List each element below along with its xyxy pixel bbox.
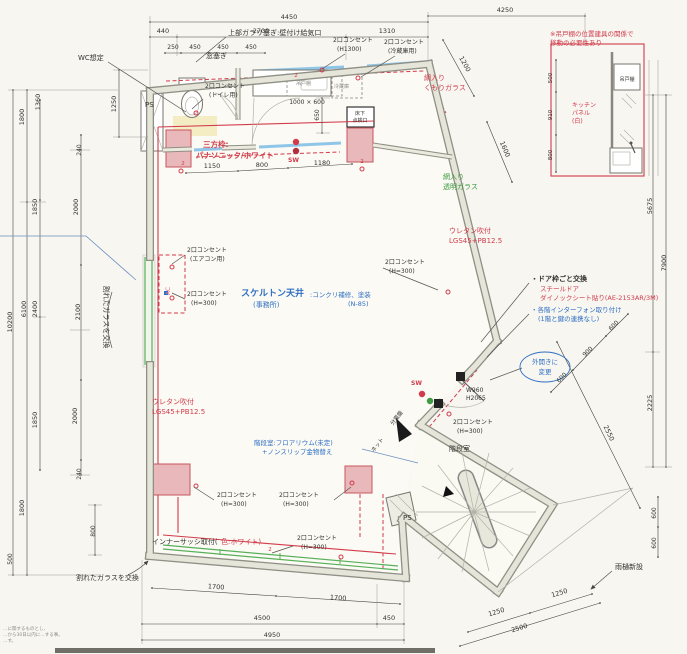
- plan-label: 1310: [379, 27, 396, 35]
- outlet-label: 2口コンセント: [453, 419, 493, 426]
- plan-label: 5675: [646, 198, 654, 215]
- plan-label: 変更: [539, 367, 553, 376]
- plan-label: 1600: [498, 140, 512, 158]
- plan-label: LGS45+PB12.5: [152, 408, 205, 416]
- plan-label: 2225: [646, 395, 654, 412]
- outlet-label: 2口コンセント: [384, 39, 424, 46]
- plan-label: 250: [167, 44, 179, 51]
- plan-label: H2065: [466, 395, 486, 402]
- plan-label: (H=300): [221, 501, 247, 508]
- note-downspout: 雨樋新設: [615, 562, 643, 571]
- note-door-outswing: 外開きに: [532, 357, 558, 366]
- plan-label: 2000: [72, 199, 80, 216]
- note-gallery-close: 上部ガラリ塞ぎ:壁付け給気口: [228, 28, 321, 37]
- note-broken-glass: 割れたガラスを交換: [102, 286, 111, 349]
- plan-label: 2000: [71, 408, 79, 425]
- note-window-close: 窓塞ぎ: [206, 51, 227, 60]
- note-stair-floor: 階段室:フロアリウム(未定): [254, 438, 333, 447]
- plan-label: 450: [383, 614, 395, 622]
- plan-label: 4950: [264, 631, 281, 639]
- plan-label: ウレタン吹付: [152, 397, 194, 406]
- plan-label: 650: [314, 109, 321, 121]
- plan-label: 800: [548, 149, 554, 160]
- plan-label: 1250: [487, 606, 505, 618]
- footnote-line: …から30日以内に…する事。: [3, 631, 63, 638]
- plan-label: 1850: [31, 412, 39, 429]
- switch-label: SW: [411, 380, 422, 387]
- plan-label: 500: [548, 72, 554, 83]
- plan-label: (N-85): [348, 300, 369, 308]
- plan-label: 800: [256, 161, 268, 169]
- plan-label: 600: [555, 371, 568, 384]
- plan-label: 1800: [18, 109, 26, 126]
- plan-label: 1800: [18, 500, 26, 517]
- plan-label: 800: [90, 525, 97, 537]
- plan-label: 2500: [510, 622, 528, 634]
- footnote-line: …す。: [3, 637, 16, 644]
- note-door-replace: ・ドア枠ごと交換: [531, 274, 588, 283]
- floor-plan-scan: 4450440270013102504504504504250120016001…: [0, 0, 687, 654]
- plan-label: 910: [548, 109, 554, 120]
- plan-label: 吊戸棚: [296, 80, 311, 87]
- plan-label: 240: [76, 144, 83, 156]
- plan-label: パネル: [572, 110, 590, 117]
- plan-label: 網入り: [424, 73, 445, 82]
- plan-label: (H=300): [389, 268, 415, 275]
- plan-label: (エアコン用): [190, 256, 225, 263]
- note-intercom: ・各階インターフォン取り付け: [531, 305, 622, 314]
- plan-label: 240: [76, 468, 83, 480]
- footnote-line: …に関するものとし、: [3, 625, 48, 632]
- plan-label: 900: [581, 345, 594, 358]
- plan-label: 4500: [254, 614, 271, 622]
- room-label-office: (事務所): [253, 300, 280, 309]
- plan-label: 1700: [330, 593, 347, 602]
- switch-dot: [419, 391, 425, 397]
- plan-label: 2550: [602, 424, 616, 442]
- plan-label: 点検口: [352, 117, 367, 124]
- plan-label: パナソニック/ホワイト: [196, 150, 274, 160]
- plan-label: 冷蔵庫: [334, 83, 349, 90]
- plan-label: 1360: [34, 94, 42, 111]
- room-label-office-ceiling: スケルトン天井: [241, 287, 304, 299]
- note-door-frame: 三方枠:: [203, 139, 229, 149]
- plan-label: 1250: [550, 587, 568, 599]
- plan-label: 450: [189, 44, 201, 51]
- plan-label: (H1300): [337, 46, 361, 53]
- plan-label: くもりガラス: [424, 83, 466, 92]
- shaft-label: PS: [403, 514, 412, 522]
- switch-dot: [427, 398, 433, 404]
- plan-label: 床下: [355, 110, 365, 117]
- note-cabinet-move: ※吊戸棚の位置建具の関係で: [550, 29, 634, 38]
- ac-unit-label: AC: [165, 287, 172, 295]
- plan-label: (H=300): [457, 428, 483, 435]
- plan-label: 4450: [281, 13, 298, 21]
- plan-label: (H=300): [283, 501, 309, 508]
- plan-label: 2: [181, 161, 185, 167]
- plan-label: 網入り: [443, 172, 464, 181]
- plan-label: (白): [572, 117, 583, 125]
- floor-plan-canvas: 4450440270013102504504504504250120016001…: [0, 0, 687, 654]
- plan-label: 2400: [31, 301, 39, 318]
- note-inner-sash: インナーサッシ取付(: [152, 537, 218, 546]
- plan-label: 2: [360, 159, 364, 165]
- plan-label: :コンクリ補修、塗装: [310, 290, 371, 299]
- note-broken-glass-2: 割れたガラスを交換: [76, 573, 139, 582]
- plan-label: LGS45+PB12.5: [449, 237, 502, 245]
- kitchen-panel-inset: [551, 44, 658, 176]
- scan-edge: [55, 648, 435, 653]
- outlet-label: 2口コンセント: [205, 83, 245, 90]
- plan-label: 7900: [660, 255, 668, 272]
- note-wc: WC想定: [78, 53, 104, 62]
- switch-dot: [293, 139, 299, 145]
- plan-label: 1700: [208, 582, 225, 591]
- plan-label: 透明ガラス: [443, 182, 478, 191]
- plan-label: 1150: [204, 162, 221, 170]
- plan-label: 440: [157, 27, 169, 35]
- toilet-bowl: [182, 91, 203, 118]
- outlet-label: 2口コンセント: [187, 247, 227, 254]
- plan-label: 吊戸棚: [619, 76, 634, 83]
- plan-label: 4250: [497, 6, 514, 14]
- plan-label: 1200: [457, 55, 472, 73]
- outlet-label: 2口コンセント: [333, 37, 373, 44]
- plan-label: 1250: [110, 96, 118, 113]
- plan-label: 6100: [20, 301, 28, 318]
- plan-label: 移動の必要性あり: [550, 38, 602, 47]
- plan-label: (1階と鍵の連携なし): [538, 314, 599, 323]
- plan-label: 2: [268, 547, 272, 553]
- plan-label: W960: [466, 387, 484, 394]
- plan-label: 600: [607, 319, 620, 332]
- outlet-label: 2口コンセント: [385, 259, 425, 266]
- plan-label: ウレタン吹付: [449, 226, 491, 235]
- shaft-label: PS: [145, 101, 154, 109]
- outlet-label: 2口コンセント: [187, 291, 227, 298]
- note-kitchen-panel: キッチン: [572, 102, 596, 109]
- outlet-label: 2口コンセント: [279, 492, 319, 499]
- plan-label: 450: [245, 44, 257, 51]
- floor-access-hatch: [347, 107, 374, 127]
- plan-label: +ノンスリップ金物替え: [262, 447, 332, 456]
- plan-label: 600: [651, 537, 658, 549]
- plan-label: (冷蔵庫用): [388, 47, 417, 55]
- plan-label: 500: [7, 553, 14, 565]
- plan-label: 1180: [314, 159, 331, 167]
- plan-label: 色:ホワイト): [221, 537, 261, 546]
- plan-label: 450: [217, 44, 229, 51]
- plan-label: 1850: [31, 199, 39, 216]
- plan-label: (H=300): [301, 544, 327, 551]
- plan-label: 2: [294, 73, 298, 79]
- plan-label: スチールドア: [540, 285, 580, 293]
- plan-label: ダイノックシート貼り(AE-2153AR/3M): [540, 293, 658, 302]
- outlet-label: 2口コンセント: [297, 535, 337, 542]
- plan-label: 600: [651, 507, 658, 519]
- plan-label: (トイレ用): [209, 92, 238, 99]
- room-label-stairwell: 階段室: [449, 444, 470, 453]
- plan-label: (H=300): [191, 300, 217, 307]
- outlet-label: 2口コンセント: [217, 492, 257, 499]
- switch-label: SW: [288, 157, 299, 164]
- plan-label: 1000 × 600: [289, 99, 325, 106]
- plan-label: 2100: [74, 304, 82, 321]
- plan-label: 10200: [6, 312, 14, 333]
- switch-dot: [293, 148, 299, 154]
